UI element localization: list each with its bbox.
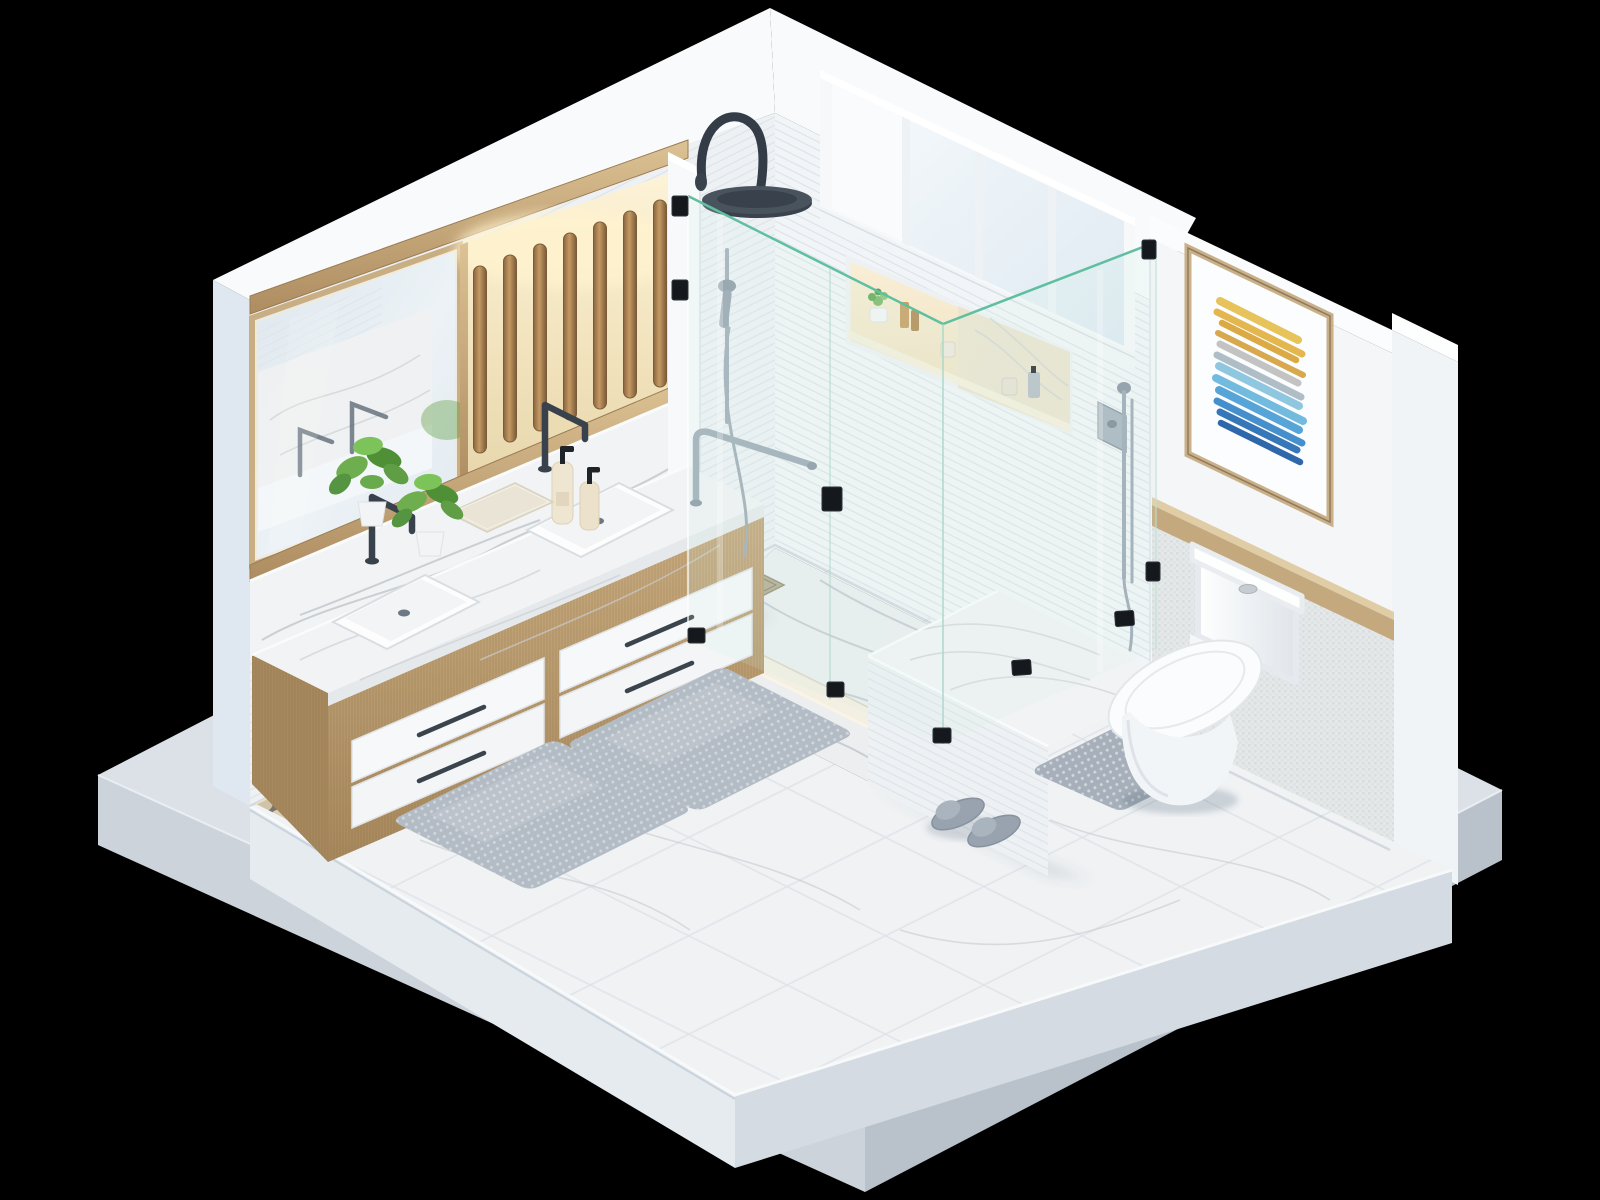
left-pillar <box>213 280 250 806</box>
slat <box>564 233 577 420</box>
flush-button <box>1239 585 1257 594</box>
slat <box>594 222 607 409</box>
sink-drain <box>398 610 410 617</box>
window-mullion <box>902 116 910 247</box>
slat <box>654 200 667 387</box>
slat <box>504 255 517 442</box>
right-pillar <box>1392 330 1458 885</box>
window-mullion <box>975 150 983 281</box>
slat <box>474 266 487 453</box>
door-handle-plate <box>822 487 842 511</box>
bathroom-render <box>0 0 1600 1200</box>
slat <box>624 211 637 398</box>
